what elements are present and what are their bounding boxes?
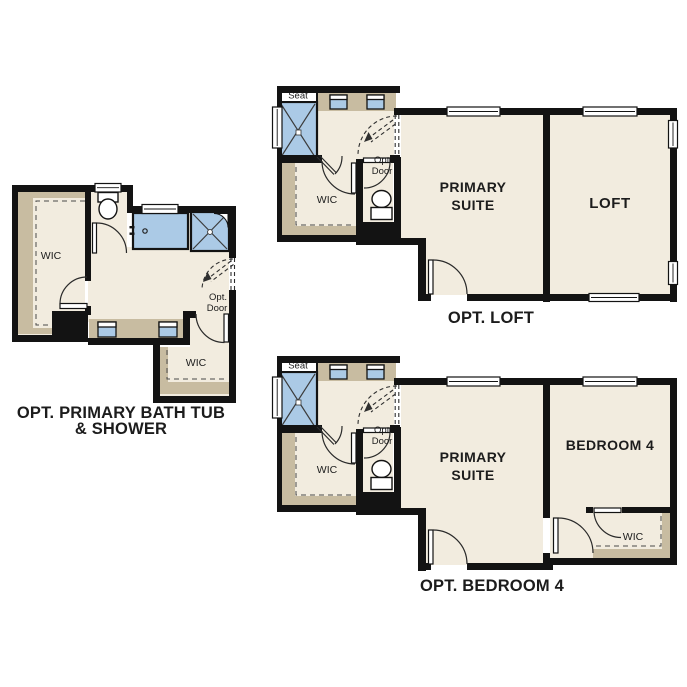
window-icon <box>583 107 637 116</box>
window-icon <box>447 107 500 116</box>
wic-label: WIC <box>41 250 62 262</box>
plan-caption: OPT. LOFT <box>448 309 534 327</box>
window-icon <box>583 377 637 386</box>
room-label-primary-1: PRIMARY <box>440 179 507 195</box>
opt-door-label-2: Door <box>207 303 228 314</box>
bathtub-icon <box>130 213 189 249</box>
toilet-icon <box>98 193 118 220</box>
wic-shelf-band-left <box>18 192 33 334</box>
room-label-primary-2: SUITE <box>451 467 494 483</box>
window-icon <box>669 262 678 285</box>
window-icon <box>447 377 500 386</box>
room-label-primary-1: PRIMARY <box>440 449 507 465</box>
sink-icon <box>159 322 177 337</box>
floorplan-sheet: Seat WIC Opt. Door <box>0 0 687 687</box>
loft-plan: PRIMARY SUITE LOFT OPT. LOFT <box>273 86 678 327</box>
floorplan-canvas: Seat WIC Opt. Door <box>0 0 687 687</box>
window-icon <box>95 184 121 193</box>
shower-drain <box>208 230 213 235</box>
sink-icon <box>98 322 116 337</box>
wic2-shelf-band-bottom <box>160 382 229 394</box>
wic-label: WIC <box>186 357 207 369</box>
room-label-bedroom4: BEDROOM 4 <box>566 437 654 453</box>
room-label-primary-2: SUITE <box>451 197 494 213</box>
window-icon <box>589 294 639 302</box>
plan-caption: OPT. BEDROOM 4 <box>420 577 565 595</box>
bedroom4-plan: PRIMARY SUITE BEDROOM 4 WIC OPT. BEDROOM… <box>273 356 678 595</box>
plan-caption-line2: & SHOWER <box>75 420 167 438</box>
shower-icon <box>191 212 229 251</box>
room-label-loft: LOFT <box>589 195 631 212</box>
bath-plan: WIC WIC Opt. Door OPT. PRIMARY BATH TUB … <box>12 184 236 439</box>
primary-suite-floor <box>426 245 543 295</box>
wic-shelf-band-bottom <box>593 549 671 558</box>
window-icon <box>669 121 678 149</box>
opt-door-label-1: Opt. <box>209 292 227 303</box>
wic-label: WIC <box>623 531 644 543</box>
window-icon <box>142 205 178 214</box>
primary-suite-floor <box>426 515 543 565</box>
